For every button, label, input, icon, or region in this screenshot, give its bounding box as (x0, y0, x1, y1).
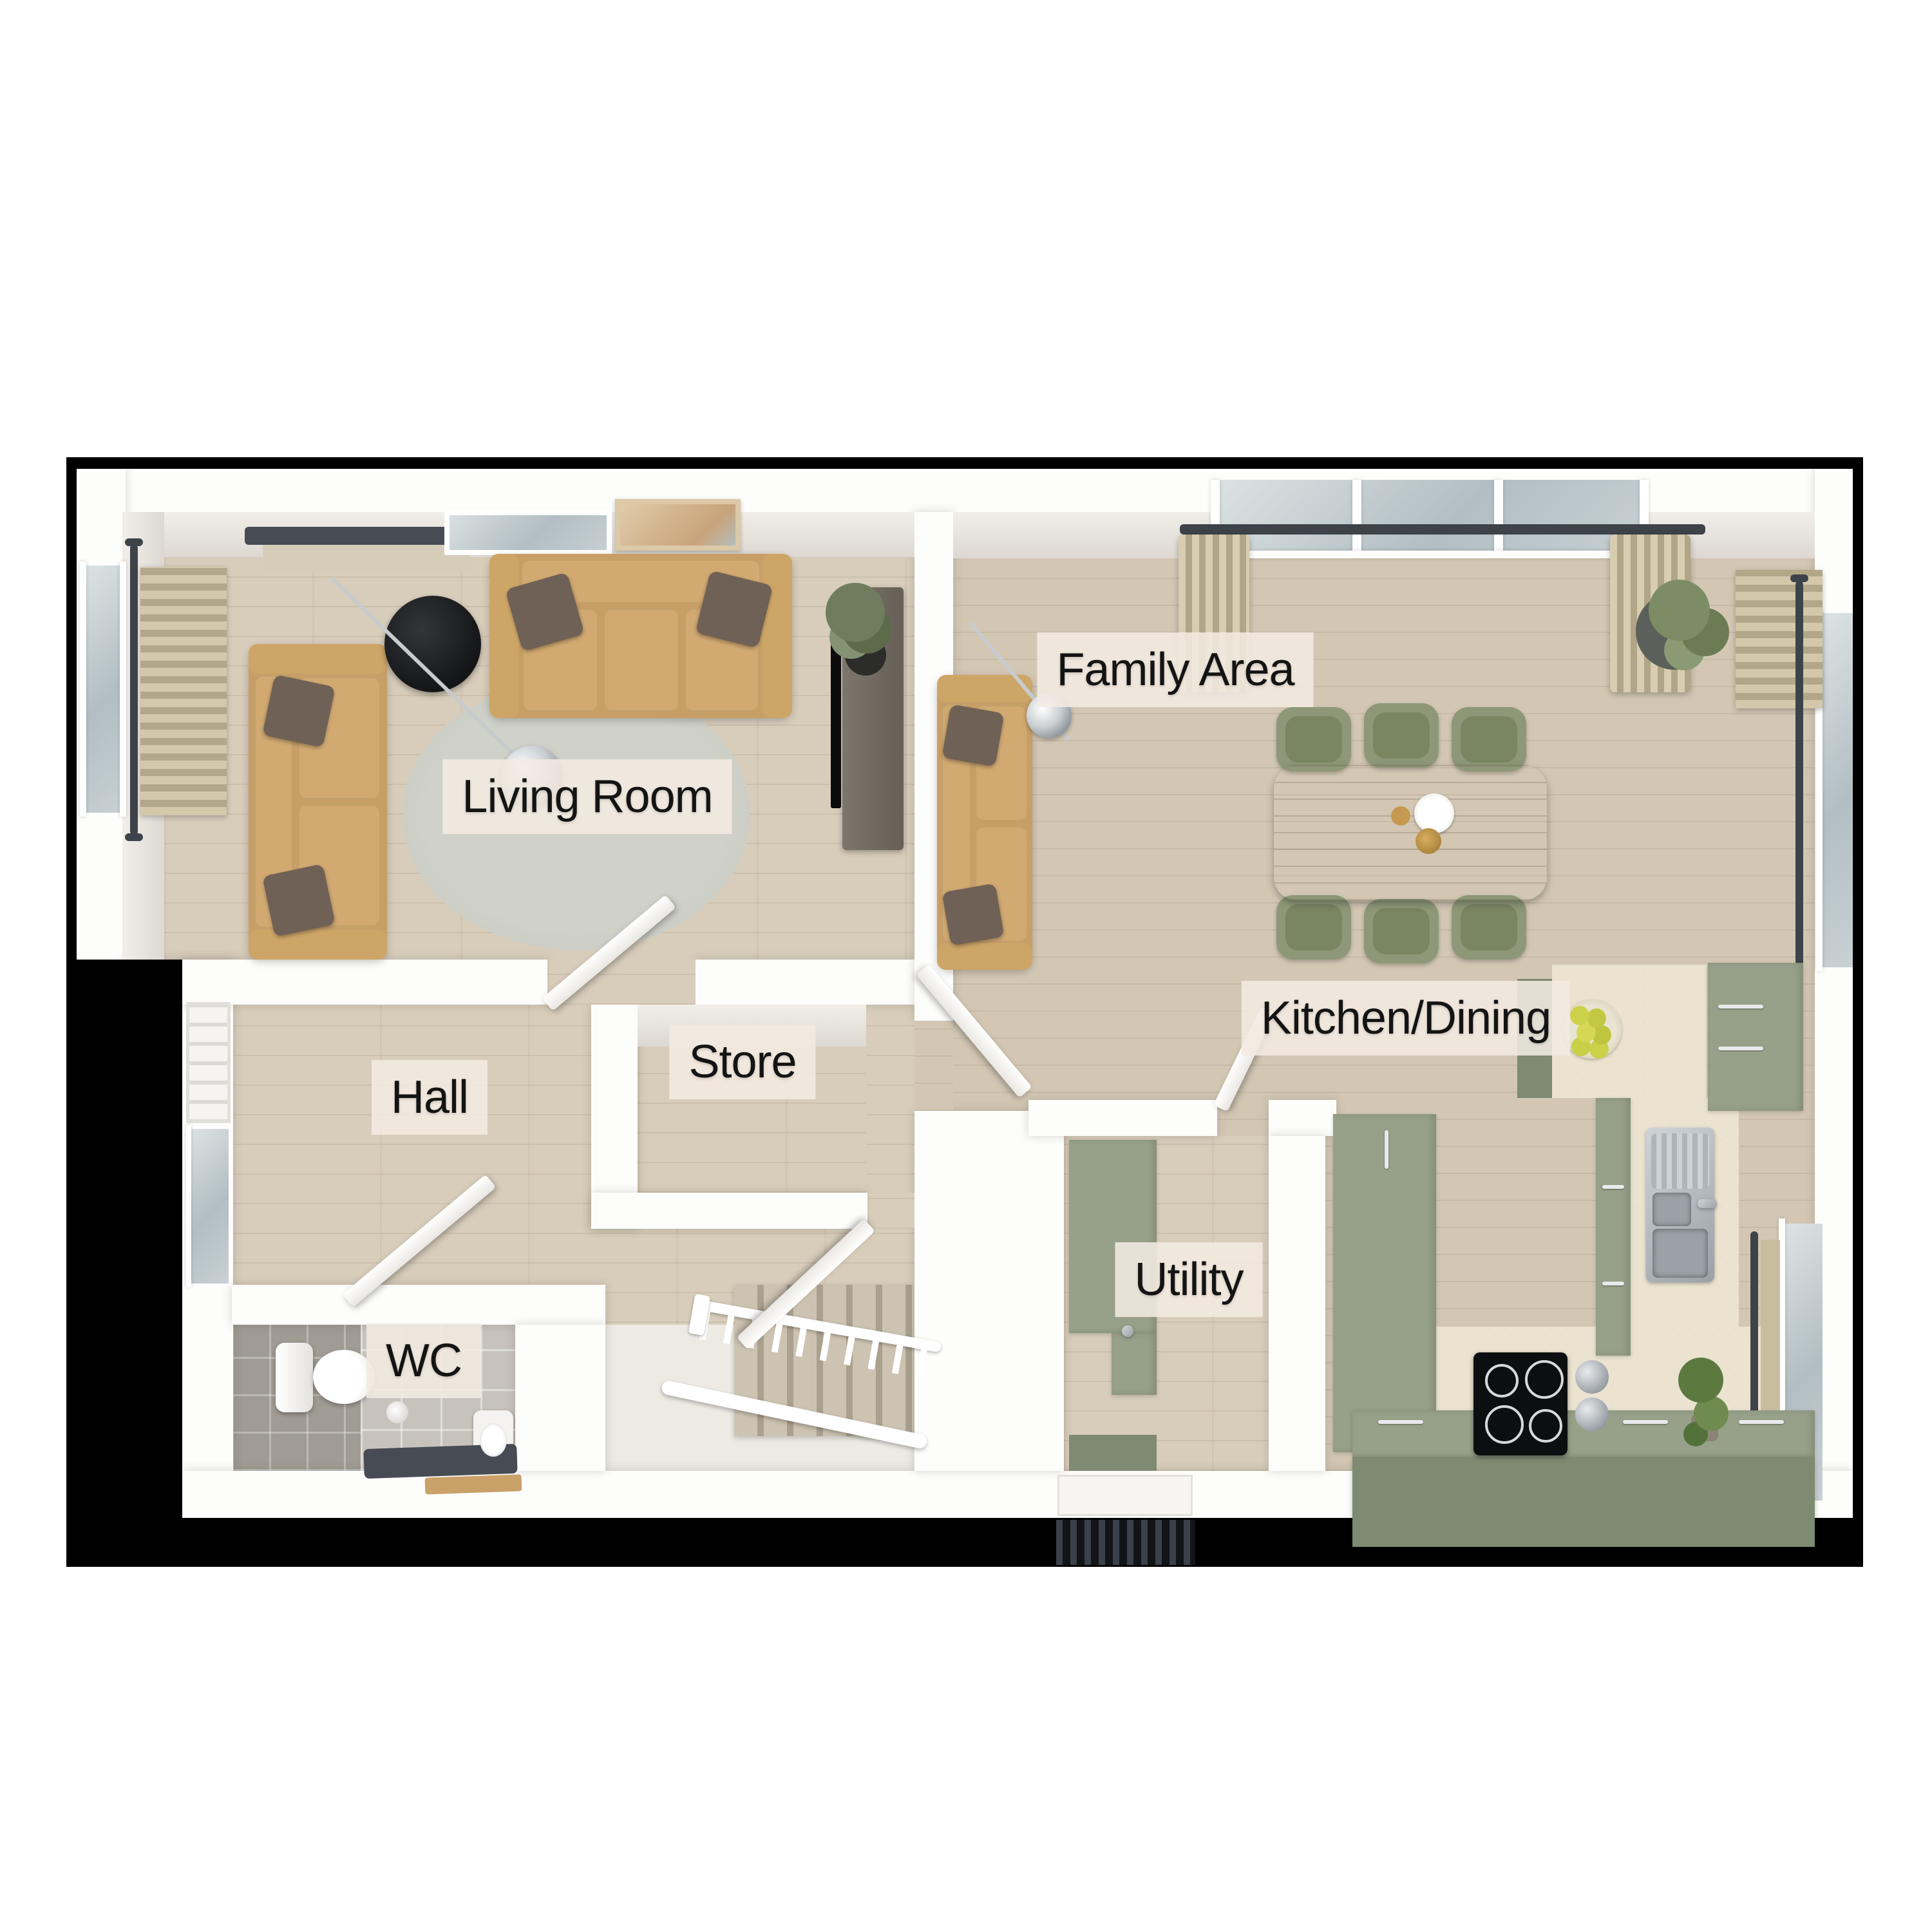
room-label-living-room: Living Room (442, 759, 732, 834)
canister-1 (1575, 1360, 1609, 1394)
sofa-pillow-1 (262, 674, 336, 748)
plan-footprint-notch (66, 960, 182, 1567)
wc-toilet-roll (386, 1401, 408, 1423)
living-sofa-three-seat (489, 554, 792, 718)
store-doorway-threshold (867, 1193, 914, 1229)
family-east-window-glass (1820, 613, 1853, 967)
sofa-pillow-1 (942, 704, 1004, 766)
living-plant (826, 583, 885, 642)
living-window-frame (80, 562, 86, 817)
patio-door-sill (1211, 551, 1649, 558)
chair-seat (1461, 904, 1517, 951)
sink-run-handle (1602, 1185, 1624, 1189)
wc-toilet-bowl (313, 1350, 375, 1404)
store-wall-bottom (591, 1193, 867, 1229)
kitchen-plant-pot (1691, 1414, 1718, 1441)
wc-cistern (276, 1343, 313, 1412)
counter-handle (1378, 1420, 1423, 1424)
dining-chair-6 (1452, 895, 1526, 960)
living-curtain-pole (130, 544, 138, 835)
chair-seat (1285, 716, 1342, 762)
skylight-blind-bar (245, 527, 448, 545)
hob-burner-1 (1485, 1364, 1519, 1397)
utility-base-unit (1069, 1435, 1157, 1471)
utility-counter-step (1112, 1333, 1157, 1395)
fruit-bowl (1562, 999, 1622, 1059)
chair-seat (1373, 712, 1430, 759)
sink-drainer (1651, 1133, 1709, 1189)
dining-chair-5 (1364, 899, 1439, 963)
kitchen-base-counter-front (1352, 1457, 1815, 1547)
room-label-family-area: Family Area (1037, 632, 1313, 707)
sofa-arm-bottom (249, 930, 387, 960)
hall-window-glass (189, 1129, 229, 1283)
living-sofa-two-seat (249, 644, 387, 960)
front-entrance-panel (1057, 1475, 1193, 1516)
patio-curtain-track (1180, 524, 1705, 535)
living-south-wall-right (696, 960, 914, 1005)
wc-wall-right (515, 1325, 605, 1471)
living-window-frame-inner (120, 562, 126, 817)
patio-door-mullion-2 (1352, 480, 1361, 557)
skylight-roller (263, 545, 470, 572)
dining-chair-2 (1364, 703, 1439, 768)
chair-seat (1461, 716, 1517, 762)
patio-door-mullion-3 (1494, 480, 1503, 557)
hob-burner-4 (1529, 1409, 1562, 1443)
corner-plant (1649, 580, 1710, 641)
sink-run-handle (1602, 1282, 1624, 1285)
sofa-arm-bottom (937, 943, 1032, 970)
fruit-lemons (1570, 1006, 1589, 1025)
sofa-seat-cushion-2 (603, 608, 680, 712)
table-decor-bowl (1391, 806, 1410, 826)
plan-border-right (1853, 457, 1863, 1567)
counter-handle (1623, 1420, 1668, 1424)
kitchen-wall-cabinets (1708, 963, 1803, 1111)
room-label-utility: Utility (1115, 1242, 1263, 1317)
dining-chair-4 (1276, 895, 1351, 960)
wc-wall-top (232, 1285, 605, 1325)
utility-tap (1122, 1325, 1133, 1337)
sink-bowl-large (1653, 1229, 1708, 1278)
room-label-hall: Hall (372, 1060, 488, 1135)
rooflight-glass (444, 510, 612, 555)
living-window-blind (140, 567, 227, 815)
family-curtain-pole-finial (1790, 574, 1808, 582)
wc-threshold (425, 1474, 522, 1494)
family-north-wall-face-left (953, 512, 1211, 558)
sink-tap (1698, 1199, 1717, 1208)
utility-wall-top-left (1028, 1100, 1217, 1136)
living-south-wall-left (122, 960, 547, 1005)
room-label-wc: WC (366, 1323, 481, 1398)
family-window-blind (1736, 570, 1823, 708)
kitchen-plant (1678, 1358, 1723, 1403)
living-window-glass (82, 565, 124, 813)
plan-border-top (66, 457, 1863, 469)
room-label-kitchen-dining: Kitchen/Dining (1242, 981, 1570, 1056)
porch-canopy-stripes (1056, 1520, 1195, 1565)
dining-chair-3 (1452, 707, 1526, 772)
hall-east-wall-block (914, 1111, 1064, 1471)
kitchen-sink-run (1596, 1098, 1631, 1356)
chair-seat (1373, 908, 1430, 954)
chair-seat (1285, 904, 1342, 951)
floor-plan: Living Room Family Area Kitchen/Dining H… (0, 0, 1932, 1932)
table-decor-vase (1416, 828, 1441, 854)
hall-window-frame (186, 1125, 191, 1287)
counter-handle (1739, 1420, 1784, 1424)
sofa-pillow-2 (942, 883, 1004, 945)
dining-table (1274, 765, 1547, 900)
cabinet-handle (1718, 1046, 1763, 1050)
room-label-store: Store (669, 1025, 815, 1099)
tv-screen (831, 634, 841, 808)
picture-frame (615, 499, 741, 551)
patio-door-glazing (1211, 480, 1649, 557)
family-sofa (937, 675, 1032, 970)
utility-wall-right (1269, 1136, 1325, 1471)
canister-2 (1575, 1397, 1609, 1431)
hob-burner-2 (1525, 1360, 1564, 1399)
tall-unit-handle (1385, 1130, 1388, 1169)
sink-bowl-small (1653, 1193, 1691, 1226)
wc-basin-bowl (480, 1423, 507, 1457)
sofa-arm-right (762, 554, 792, 718)
kitchen-doorway-threshold (914, 1021, 953, 1111)
hall-front-door (186, 1002, 231, 1123)
sofa-pillow-2 (262, 864, 336, 937)
sofa-arm-left (489, 554, 519, 718)
cabinet-handle (1718, 1005, 1763, 1009)
plan-border-left (66, 457, 77, 960)
living-curtain-pole-finial-bottom (125, 833, 143, 841)
sofa-arm-top (249, 644, 387, 674)
dining-chair-1 (1276, 707, 1351, 772)
hob-burner-3 (1485, 1405, 1524, 1444)
utility-wall-top-right (1269, 1100, 1336, 1136)
table-decor-flowers (1414, 793, 1454, 833)
living-curtain-pole-finial-top (125, 538, 143, 546)
